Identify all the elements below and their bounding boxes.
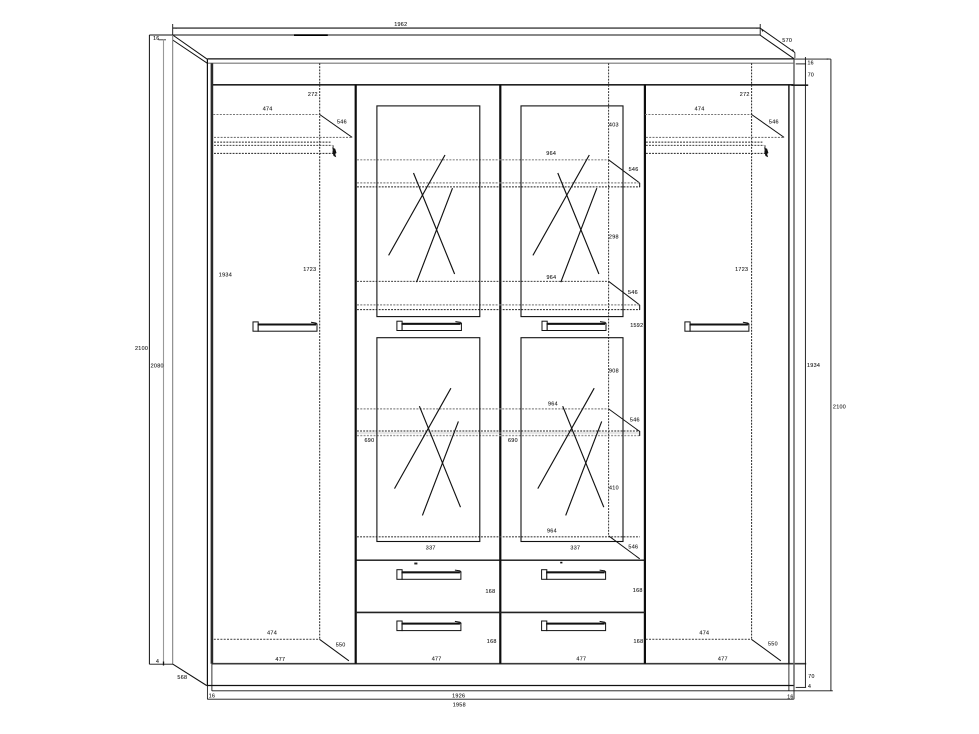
svg-text:477: 477 [576, 657, 586, 663]
svg-text:4: 4 [808, 684, 811, 690]
svg-text:474: 474 [695, 106, 705, 112]
svg-text:546: 546 [769, 119, 779, 125]
svg-text:403: 403 [609, 122, 619, 128]
svg-text:546: 546 [628, 290, 638, 296]
svg-text:1934: 1934 [219, 272, 232, 278]
svg-text:1723: 1723 [735, 267, 748, 273]
svg-text:337: 337 [426, 546, 436, 552]
svg-text:168: 168 [486, 589, 496, 595]
svg-text:70: 70 [808, 674, 814, 680]
svg-text:2100: 2100 [833, 405, 846, 411]
svg-text:477: 477 [432, 657, 442, 663]
svg-text:16: 16 [153, 36, 159, 42]
svg-text:546: 546 [630, 418, 640, 424]
svg-text:964: 964 [546, 151, 556, 157]
svg-text:272: 272 [308, 92, 318, 98]
svg-text:16: 16 [808, 61, 814, 67]
svg-text:168: 168 [634, 639, 644, 645]
svg-text:2080: 2080 [151, 363, 164, 369]
svg-text:2100: 2100 [135, 346, 148, 352]
svg-text:1592: 1592 [630, 323, 643, 329]
svg-text:964: 964 [547, 528, 557, 534]
svg-text:168: 168 [633, 588, 643, 594]
svg-text:168: 168 [487, 639, 497, 645]
svg-text:546: 546 [629, 167, 639, 173]
svg-text:568: 568 [177, 675, 187, 681]
svg-text:477: 477 [718, 657, 728, 663]
svg-text:1723: 1723 [303, 267, 316, 273]
svg-text:70: 70 [808, 72, 814, 78]
svg-text:546: 546 [337, 119, 347, 125]
svg-text:474: 474 [699, 630, 709, 636]
svg-text:550: 550 [768, 642, 778, 648]
svg-text:1962: 1962 [394, 22, 407, 28]
svg-text:337: 337 [570, 546, 580, 552]
svg-text:474: 474 [263, 106, 273, 112]
svg-text:1958: 1958 [453, 702, 466, 708]
svg-text:1934: 1934 [807, 363, 820, 369]
svg-text:570: 570 [782, 38, 792, 44]
svg-text:16: 16 [787, 694, 793, 700]
svg-text:908: 908 [609, 369, 619, 375]
svg-text:298: 298 [609, 234, 619, 240]
svg-text:550: 550 [336, 642, 346, 648]
svg-text:964: 964 [547, 275, 557, 281]
svg-text:1926: 1926 [452, 694, 465, 700]
svg-text:16: 16 [209, 693, 215, 699]
svg-text:272: 272 [740, 92, 750, 98]
svg-text:964: 964 [548, 401, 558, 407]
svg-text:477: 477 [275, 657, 285, 663]
svg-text:546: 546 [628, 545, 638, 551]
svg-text:4: 4 [156, 659, 159, 665]
svg-text:474: 474 [267, 631, 277, 637]
svg-text:690: 690 [365, 438, 375, 444]
svg-text:690: 690 [508, 438, 518, 444]
svg-text:410: 410 [609, 485, 619, 491]
